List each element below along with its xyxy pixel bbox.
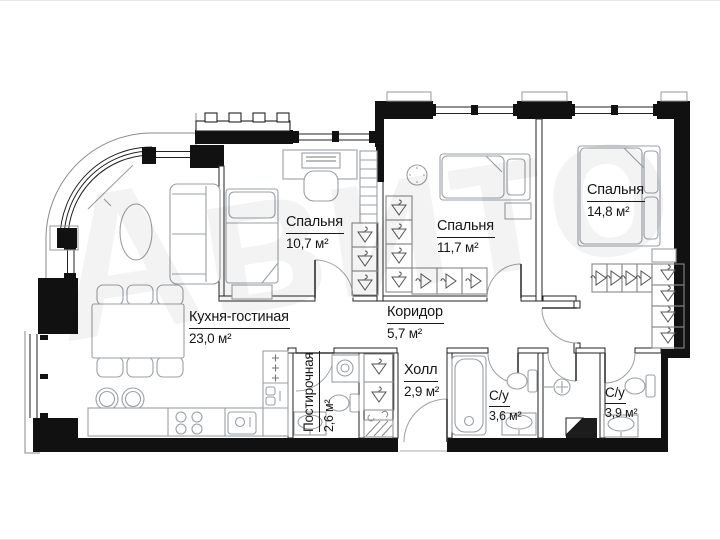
door-arc: [315, 260, 353, 298]
room-area: 10,7 м²: [286, 234, 328, 252]
room-label-bathroom-2: С/у 3,9 м²: [605, 385, 637, 420]
room-name: Спальня: [437, 218, 495, 238]
room-name: Холл: [404, 362, 438, 382]
room-area: 14,8 м²: [587, 202, 629, 220]
room-area: 2,9 м²: [404, 382, 439, 400]
bedroom3-furniture: [578, 146, 684, 348]
coffee-table-icon: [120, 204, 152, 260]
room-label-bedroom-1: Спальня 10,7 м²: [286, 214, 344, 251]
room-name: Спальня: [587, 182, 645, 202]
room-area: 11,7 м²: [437, 238, 478, 256]
shower-room-fixtures: [543, 379, 597, 438]
door-arc: [404, 399, 447, 442]
bench-icon: [232, 285, 272, 299]
dining-table-icon: [92, 285, 184, 377]
room-label-bedroom-2: Спальня 11,7 м²: [437, 218, 495, 255]
parapet-crenellation: [196, 113, 290, 131]
room-name: Коридор: [387, 304, 444, 324]
room-name: Кухня-гостиная: [189, 309, 290, 329]
room-name: С/у: [605, 385, 626, 404]
tall-unit-icon: [263, 351, 288, 436]
bathtub-icon: [452, 356, 486, 435]
room-label-corridor: Коридор 5,7 м²: [387, 304, 444, 341]
room-label-kitchen-living: Кухня-гостиная 23,0 м²: [189, 309, 290, 346]
shower-icon: [543, 379, 570, 395]
floor-plan-drawing: [0, 1, 720, 540]
closet-items: [368, 411, 388, 421]
nightstand-icon: [652, 249, 676, 262]
desk-icon: [283, 150, 357, 201]
bar-stool-icon: [96, 388, 144, 410]
round-table-icon: [407, 165, 427, 185]
room-label-laundry: Постирочная 2,6 м²: [301, 351, 336, 432]
room-area: 2,6 м²: [320, 400, 336, 432]
floorplan-page: Авито Спальня 10,7 м² Спальня 11,7 м² Сп…: [0, 0, 720, 540]
room-area: 3,9 м²: [605, 404, 637, 420]
room-area: 5,7 м²: [387, 324, 422, 342]
room-area: 23,0 м²: [189, 329, 231, 347]
nightstand-icon: [505, 203, 531, 219]
room-name: Спальня: [286, 214, 344, 234]
hall-closet: [364, 354, 394, 437]
door-arc: [487, 264, 521, 298]
shower-tray-icon: [566, 418, 597, 438]
bed-icon: [226, 189, 278, 283]
bed-icon: [440, 154, 530, 200]
chair-icon: [304, 171, 338, 201]
room-label-hall: Холл 2,9 м²: [404, 362, 439, 399]
wardrobe-icon: [591, 264, 684, 348]
wardrobe-icon: [352, 223, 378, 295]
room-label-bedroom-3: Спальня 14,8 м²: [587, 182, 645, 219]
room-name: Постирочная: [301, 351, 320, 432]
door-arc: [542, 308, 577, 343]
washing-machine-icon: [332, 355, 359, 382]
room-area: 3,6 м²: [489, 407, 521, 423]
room-label-bathroom-1: С/у 3,6 м²: [489, 388, 521, 423]
ladder-radiator-icon: [360, 151, 377, 223]
sofa-icon: [170, 184, 220, 284]
door-arc: [548, 353, 576, 381]
room-name: С/у: [489, 388, 510, 407]
